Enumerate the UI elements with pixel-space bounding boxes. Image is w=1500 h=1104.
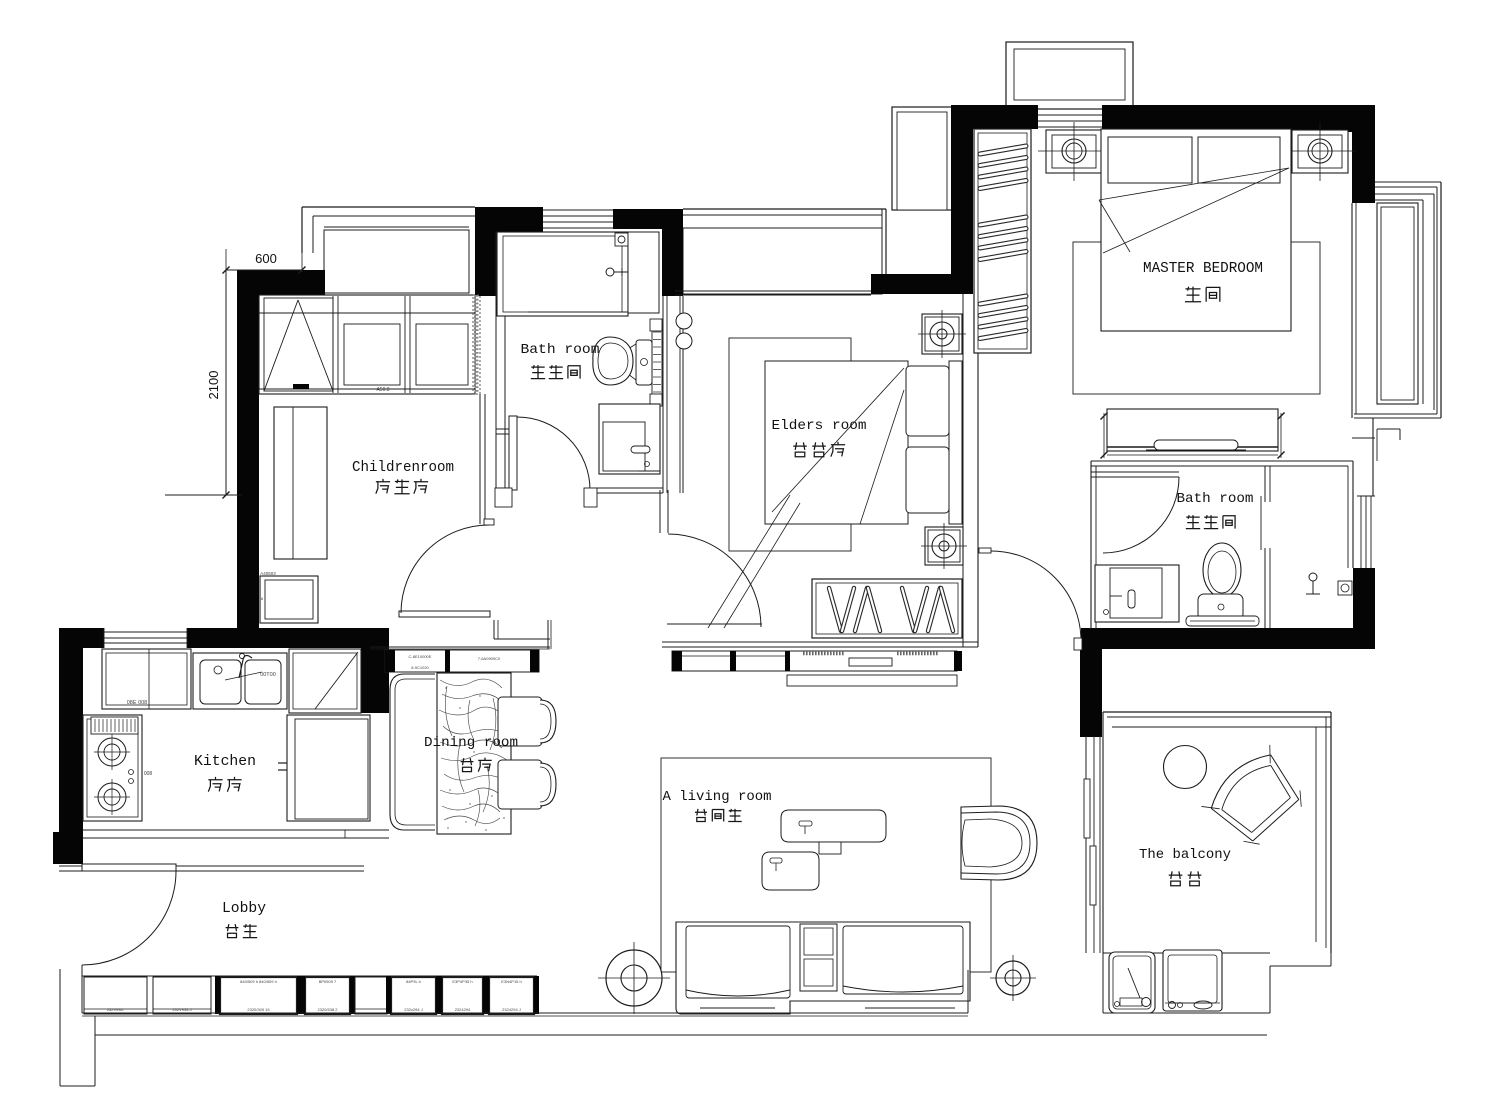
- svg-text:08E 008: 08E 008: [127, 700, 148, 706]
- svg-text:A living room: A living room: [663, 789, 772, 805]
- svg-text:A50.8: A50.8: [376, 387, 389, 393]
- svg-text:232V935-J: 232V935-J: [172, 1007, 191, 1012]
- svg-text:2324294: 2324294: [455, 1007, 471, 1012]
- svg-text:Kitchen: Kitchen: [194, 754, 256, 770]
- svg-text:Elders room: Elders room: [772, 418, 867, 434]
- svg-text:600: 600: [255, 251, 277, 266]
- svg-text:Bath room: Bath room: [1177, 491, 1254, 507]
- svg-text:Childrenroom: Childrenroom: [352, 460, 454, 476]
- svg-text:BP0509 7: BP0509 7: [319, 979, 337, 984]
- svg-text:00T00: 00T00: [260, 672, 276, 678]
- svg-text:A40503: A40503: [260, 571, 276, 576]
- svg-text:Dining room: Dining room: [424, 735, 518, 751]
- svg-text:840/509 h 840/509 h: 840/509 h 840/509 h: [240, 979, 277, 984]
- svg-text:2320/309 15: 2320/309 15: [247, 1007, 270, 1012]
- svg-text:2100: 2100: [206, 371, 221, 400]
- svg-text:7-6A0909C0: 7-6A0909C0: [478, 656, 501, 661]
- svg-text:Lobby: Lobby: [222, 900, 266, 917]
- svg-text:E3N4P15 h: E3N4P15 h: [501, 979, 521, 984]
- svg-text:008: 008: [144, 771, 153, 777]
- svg-text:2324294 J: 2324294 J: [502, 1007, 521, 1012]
- svg-text:232x294 J: 232x294 J: [404, 1007, 422, 1012]
- svg-text:84P9L h: 84P9L h: [406, 979, 421, 984]
- svg-text:232V930-: 232V930-: [107, 1007, 125, 1012]
- svg-text:MASTER BEDROOM: MASTER BEDROOM: [1143, 260, 1263, 277]
- svg-text:E3P4P35 h: E3P4P35 h: [452, 979, 472, 984]
- svg-text:8-9C1020: 8-9C1020: [411, 665, 429, 670]
- svg-text:C-8E10000E: C-8E10000E: [409, 654, 432, 659]
- svg-text:The balcony: The balcony: [1139, 847, 1231, 863]
- svg-text:2320/538 2: 2320/538 2: [317, 1007, 338, 1012]
- svg-text:Bath room: Bath room: [521, 342, 600, 358]
